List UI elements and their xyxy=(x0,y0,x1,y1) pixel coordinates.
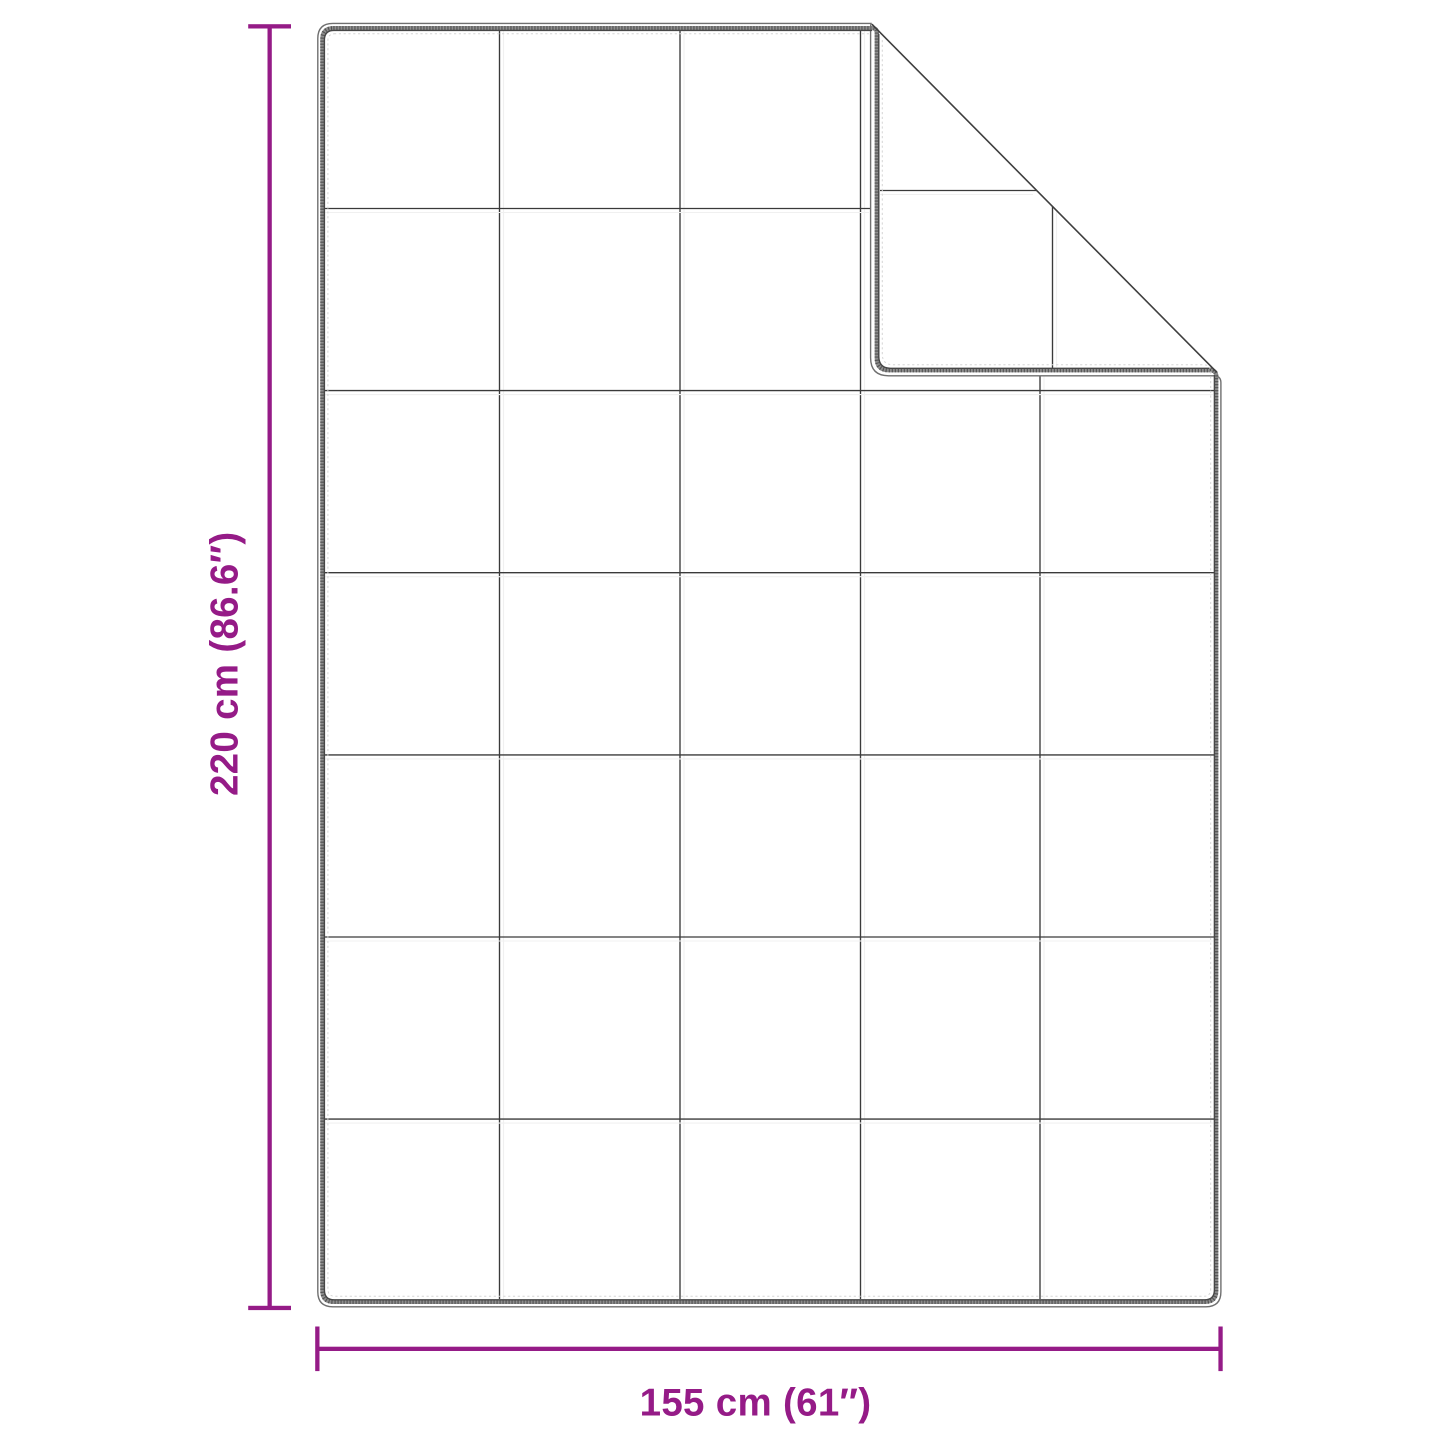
svg-text:155 cm (61″): 155 cm (61″) xyxy=(640,1382,872,1425)
svg-text:220 cm (86.6″): 220 cm (86.6″) xyxy=(204,532,247,797)
